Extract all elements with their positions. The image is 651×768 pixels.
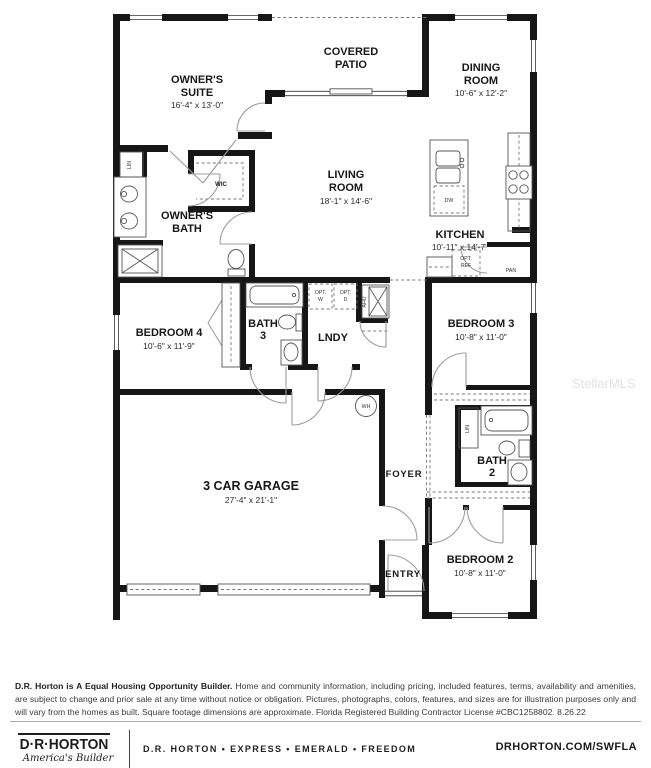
disclaimer-bold: D.R. Horton is A Equal Housing Opportuni… [15, 681, 232, 691]
label-opt-ref: OPT. [460, 256, 472, 262]
room-label-lndy: LNDY [318, 332, 349, 344]
room-dims-kitchen: 10'-11" x 14'-7" [432, 242, 488, 252]
label-opt-w: OPT. [315, 290, 327, 296]
kitchen-island [430, 140, 468, 216]
label-opt-d: OPT. [340, 290, 352, 296]
room-label-dining-room: ROOM [464, 75, 498, 87]
room-label-living-room: ROOM [329, 182, 363, 194]
bathtub-icon [246, 283, 303, 307]
room-label-owners-bath: BATH [172, 223, 202, 235]
footer-brands-text: D.R. HORTON • EXPRESS • EMERALD • FREEDO… [143, 744, 416, 754]
disclaimer-text: D.R. Horton is A Equal Housing Opportuni… [15, 680, 636, 720]
room-dims-bedroom2: 10'-8" x 11'-0" [454, 568, 506, 578]
room-label-living-room: LIVING [328, 169, 365, 181]
room-label-bath2: BATH [477, 455, 507, 467]
room-dims-owners-suite: 16'-4" x 13'-0" [171, 100, 223, 110]
room-label-covered-patio: PATIO [335, 59, 367, 71]
label-linen-1: LIN [127, 161, 133, 169]
floor-plan: OWNER'S SUITE 16'-4" x 13'-0" COVERED PA… [0, 0, 651, 665]
room-label-dining-room: DINING [462, 62, 501, 74]
shower-icon [118, 245, 162, 277]
toilet-icon [228, 250, 245, 277]
drhorton-logo-tagline: America's Builder [18, 753, 118, 764]
label-opt-d: D [344, 297, 348, 303]
room-dims-garage: 27'-4" x 21'-1" [225, 495, 277, 505]
sink-icon [281, 340, 302, 365]
room-label-bedroom4: BEDROOM 4 [136, 327, 204, 339]
watermark: StellarMLS [572, 376, 636, 391]
room-label-bedroom3: BEDROOM 3 [448, 318, 515, 330]
room-label-bath3: BATH [248, 318, 278, 330]
footer-divider-line [10, 721, 641, 722]
drhorton-logo-wordmark: D·R·HORTON [18, 733, 110, 753]
room-label-owners-suite: SUITE [181, 87, 213, 99]
room-label-bath3: 3 [260, 330, 266, 342]
room-label-owners-bath: OWNER'S [161, 210, 213, 222]
room-label-entry: ENTRY [385, 569, 421, 580]
room-label-garage: 3 CAR GARAGE [203, 479, 299, 493]
room-label-bedroom2: BEDROOM 2 [447, 554, 514, 566]
footer-website-url: DRHORTON.COM/SWFLA [496, 741, 637, 753]
room-dims-bedroom4: 10'-6" x 11'-9" [143, 341, 195, 351]
stove-icon [506, 166, 532, 199]
label-opt-w: W [318, 297, 323, 303]
room-dims-living-room: 18'-1" x 14'-6" [320, 196, 372, 206]
room-label-wic: WIC [215, 182, 227, 188]
room-dims-bedroom3: 10'-8" x 11'-0" [455, 332, 507, 342]
room-dims-dining-room: 10'-6" x 12'-2" [455, 88, 507, 98]
label-pan: PAN [506, 268, 517, 274]
label-ahu: AHU [362, 296, 368, 307]
toilet-icon [279, 314, 303, 331]
sliding-door-icon [330, 89, 372, 94]
label-dw: DW [445, 198, 454, 204]
bathtub-icon [481, 406, 532, 435]
room-label-covered-patio: COVERED [324, 46, 378, 58]
sink-icon [436, 151, 460, 166]
room-label-bath2: 2 [489, 467, 495, 479]
room-label-kitchen: KITCHEN [436, 229, 485, 241]
label-linen-2: LIN [465, 425, 471, 433]
footer-vertical-divider [129, 730, 130, 768]
sink-icon [508, 460, 532, 485]
room-label-foyer: FOYER [386, 469, 423, 480]
label-opt-ref: REF [461, 263, 471, 269]
label-wh: WH [362, 404, 371, 410]
drhorton-logo: D·R·HORTON America's Builder [18, 733, 118, 764]
floor-plan-page: OWNER'S SUITE 16'-4" x 13'-0" COVERED PA… [0, 0, 651, 768]
room-label-owners-suite: OWNER'S [171, 74, 223, 86]
